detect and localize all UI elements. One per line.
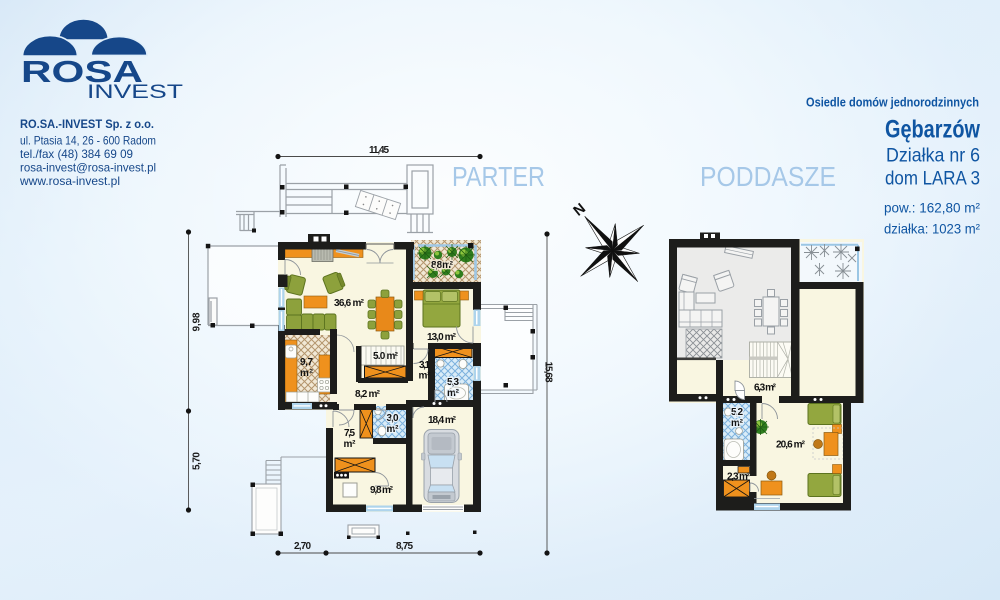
svg-text:pow.: 162,80 m²: pow.: 162,80 m² — [884, 200, 980, 216]
svg-text:dom LARA 3: dom LARA 3 — [885, 168, 980, 190]
svg-text:RO.SA.-INVEST Sp. z o.o.: RO.SA.-INVEST Sp. z o.o. — [20, 118, 154, 131]
svg-text:9,8 m²: 9,8 m² — [370, 485, 394, 496]
svg-text:m²: m² — [344, 439, 357, 450]
svg-text:7,5: 7,5 — [344, 428, 355, 439]
svg-text:m²: m² — [300, 368, 314, 379]
svg-text:m²: m² — [387, 424, 400, 435]
svg-text:5,3: 5,3 — [447, 377, 459, 388]
svg-text:tel./fax (48) 384 69 09: tel./fax (48) 384 69 09 — [20, 147, 133, 161]
svg-text:m²: m² — [419, 371, 432, 382]
svg-text:Działka nr 6: Działka nr 6 — [886, 145, 980, 167]
svg-text:13,0 m²: 13,0 m² — [427, 332, 457, 343]
svg-text:15,68: 15,68 — [543, 362, 554, 383]
svg-text:8,75: 8,75 — [396, 541, 413, 552]
svg-text:2,3 m²: 2,3 m² — [727, 472, 751, 483]
svg-text:m²: m² — [731, 418, 744, 429]
svg-text:N: N — [571, 201, 589, 220]
svg-text:6,3 m²: 6,3 m² — [754, 383, 777, 394]
svg-text:5,2: 5,2 — [731, 407, 743, 418]
svg-text:PARTER: PARTER — [452, 161, 545, 192]
svg-text:Gębarzów: Gębarzów — [885, 116, 980, 144]
svg-text:11,45: 11,45 — [369, 145, 389, 156]
svg-text:2,70: 2,70 — [294, 541, 311, 552]
svg-text:działka: 1023 m²: działka: 1023 m² — [884, 221, 980, 237]
svg-text:5,70: 5,70 — [192, 452, 203, 470]
svg-text:18,4 m²: 18,4 m² — [428, 415, 457, 426]
svg-text:PODDASZE: PODDASZE — [700, 161, 836, 192]
svg-text:ul. Ptasia 14, 26 - 600 Radom: ul. Ptasia 14, 26 - 600 Radom — [20, 134, 156, 148]
svg-text:www.rosa-invest.pl: www.rosa-invest.pl — [19, 174, 120, 188]
svg-text:3,1: 3,1 — [419, 360, 430, 371]
svg-text:8,2 m²: 8,2 m² — [355, 389, 381, 400]
svg-text:INVEST: INVEST — [87, 82, 184, 103]
svg-text:3,0: 3,0 — [387, 413, 399, 424]
svg-text:20,6 m²: 20,6 m² — [776, 440, 806, 451]
svg-text:9,98: 9,98 — [192, 312, 203, 331]
svg-text:m²: m² — [447, 388, 460, 399]
svg-text:36,6 m²: 36,6 m² — [334, 298, 365, 309]
svg-text:5.0 m²: 5.0 m² — [373, 351, 399, 362]
svg-text:9,7: 9,7 — [300, 357, 313, 368]
svg-text:8,8 m²: 8,8 m² — [431, 260, 454, 271]
svg-text:rosa-invest@rosa-invest.pl: rosa-invest@rosa-invest.pl — [20, 161, 156, 175]
svg-text:Osiedle domów jednorodzinnych: Osiedle domów jednorodzinnych — [806, 96, 979, 110]
